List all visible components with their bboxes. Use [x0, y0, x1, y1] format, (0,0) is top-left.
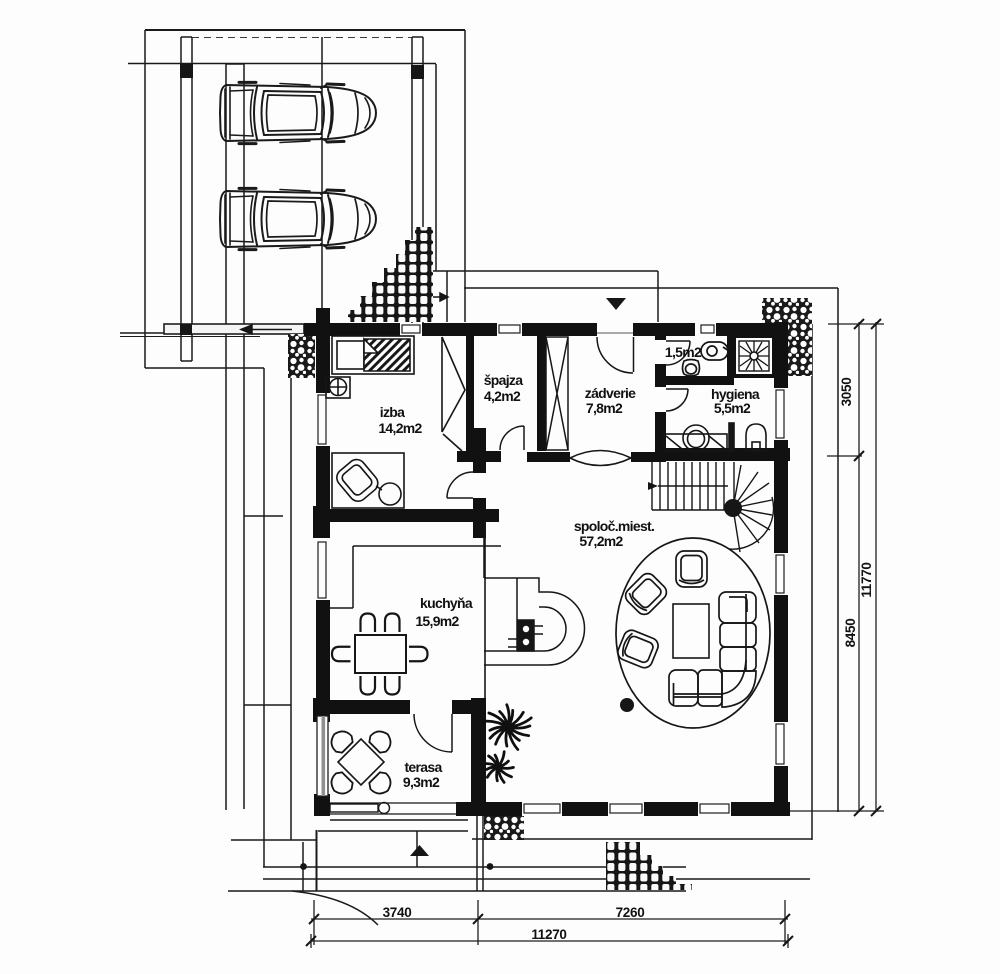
svg-text:špajza: špajza — [484, 372, 524, 388]
svg-text:15,9m2: 15,9m2 — [415, 613, 459, 629]
svg-text:57,2m2: 57,2m2 — [579, 533, 623, 549]
svg-text:5,5m2: 5,5m2 — [714, 400, 751, 416]
svg-text:11770: 11770 — [859, 562, 874, 597]
svg-text:14,2m2: 14,2m2 — [378, 420, 422, 436]
svg-text:1,5m2: 1,5m2 — [665, 344, 702, 360]
svg-text:7260: 7260 — [616, 905, 645, 920]
svg-text:izba: izba — [380, 404, 405, 420]
svg-text:8450: 8450 — [843, 619, 858, 648]
svg-text:4,2m2: 4,2m2 — [484, 388, 521, 404]
svg-text:7,8m2: 7,8m2 — [586, 400, 623, 416]
svg-text:11270: 11270 — [531, 927, 566, 942]
svg-text:3740: 3740 — [383, 905, 412, 920]
svg-text:3050: 3050 — [839, 378, 854, 407]
svg-text:zádverie: zádverie — [585, 385, 636, 401]
svg-text:terasa: terasa — [404, 759, 442, 775]
svg-text:spoloč.miest.: spoloč.miest. — [574, 518, 654, 534]
svg-text:kuchyňa: kuchyňa — [420, 595, 473, 611]
svg-text:9,3m2: 9,3m2 — [403, 774, 440, 790]
